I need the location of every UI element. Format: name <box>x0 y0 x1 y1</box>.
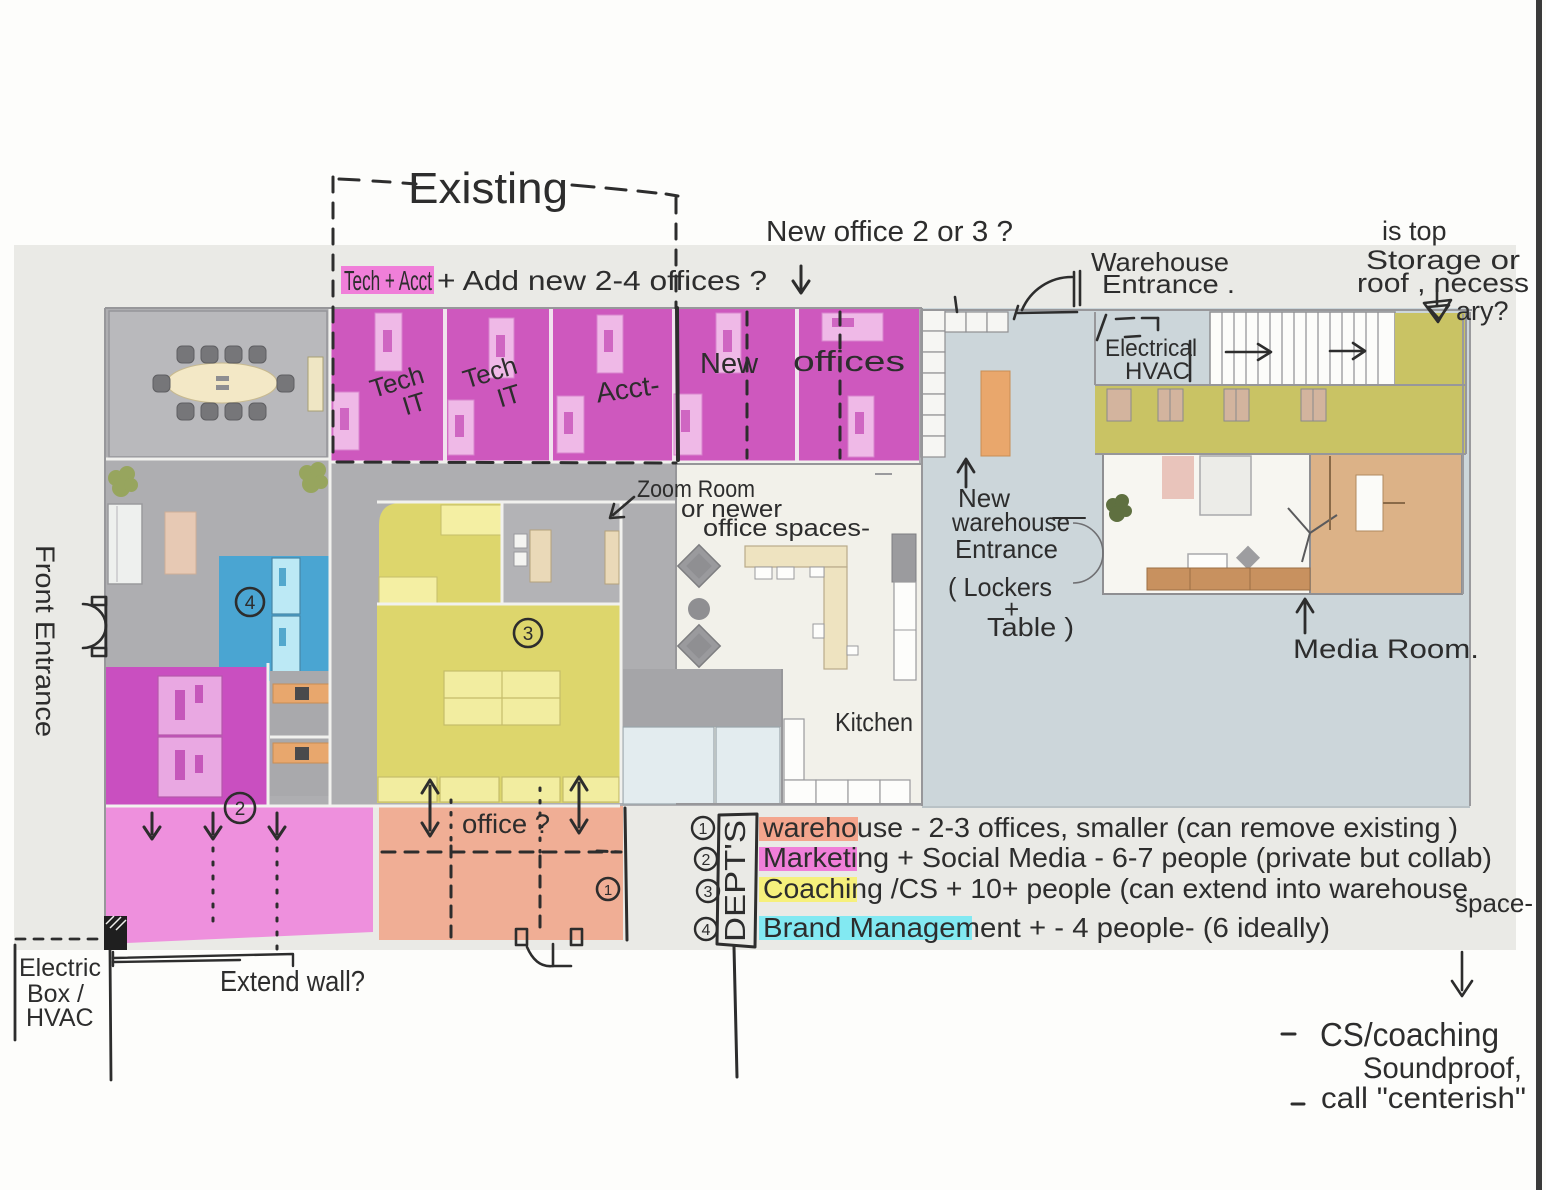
svg-text:1: 1 <box>604 882 612 899</box>
svg-text:HVAC: HVAC <box>26 1004 94 1032</box>
svg-text:Extend wall?: Extend wall? <box>220 966 365 998</box>
svg-text:DEPT'S: DEPT'S <box>720 820 752 942</box>
svg-text:roof , necess: roof , necess <box>1357 268 1529 298</box>
svg-text:3: 3 <box>523 624 534 645</box>
svg-text:Tech + Acct: Tech + Acct <box>344 265 432 296</box>
svg-text:HVAC: HVAC <box>1125 358 1190 385</box>
svg-text:offices: offices <box>793 346 905 378</box>
svg-text:3: 3 <box>704 884 713 901</box>
svg-text:Kitchen: Kitchen <box>835 707 913 737</box>
svg-text:Brand Management + - 4 people: Brand Management + - 4 people- (6 ideall… <box>763 912 1330 943</box>
svg-text:is top: is top <box>1382 216 1447 246</box>
svg-text:+ Add new 2-4 offices ?: + Add new 2-4 offices ? <box>437 265 767 296</box>
svg-text:Entrance: Entrance <box>955 534 1058 564</box>
svg-text:office ?: office ? <box>462 809 550 839</box>
svg-text:Media Room.: Media Room. <box>1293 634 1479 664</box>
svg-text:Marketing + Social Media - 6-: Marketing + Social Media - 6-7 people (p… <box>763 842 1492 873</box>
svg-text:office spaces-: office spaces- <box>703 515 870 542</box>
svg-text:( Lockers: ( Lockers <box>948 572 1052 602</box>
svg-text:warehouse - 2-3 offices, small: warehouse - 2-3 offices, smaller (can re… <box>762 812 1458 843</box>
svg-text:Entrance .: Entrance . <box>1102 269 1235 299</box>
svg-text:call "centerish": call "centerish" <box>1321 1082 1526 1115</box>
svg-text:Electric: Electric <box>19 954 101 982</box>
svg-text:4: 4 <box>702 922 711 939</box>
svg-text:space-: space- <box>1455 888 1533 918</box>
svg-text:2: 2 <box>702 852 711 869</box>
svg-text:Table ): Table ) <box>987 612 1074 642</box>
svg-text:New: New <box>700 348 759 380</box>
svg-text:1: 1 <box>699 821 708 838</box>
svg-text:CS/coaching: CS/coaching <box>1320 1016 1499 1053</box>
svg-text:2: 2 <box>235 799 246 820</box>
svg-text:Coaching /CS + 10+ people (c: Coaching /CS + 10+ people (can extend in… <box>763 873 1468 904</box>
svg-text:ary?: ary? <box>1456 296 1509 326</box>
svg-text:warehouse: warehouse <box>951 507 1070 537</box>
svg-text:Existing: Existing <box>408 164 568 213</box>
svg-text:4: 4 <box>245 593 256 614</box>
svg-text:New office 2 or 3 ?: New office 2 or 3 ? <box>766 216 1013 248</box>
svg-text:Front Entrance: Front Entrance <box>30 545 60 737</box>
svg-text:Soundproof,: Soundproof, <box>1363 1052 1522 1085</box>
